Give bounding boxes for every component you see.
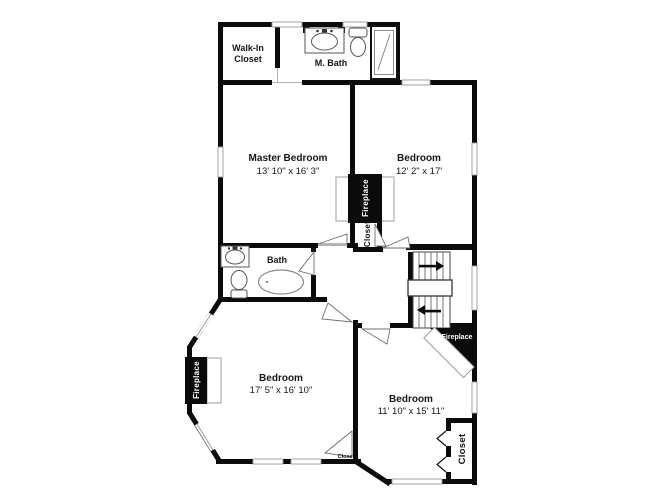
toilet-tank bbox=[349, 28, 367, 37]
fireplace-ne-label: Fireplace bbox=[361, 179, 370, 217]
master-bedroom-dims: 13' 10" x 16' 3" bbox=[257, 166, 320, 177]
tub-drain-icon bbox=[266, 281, 268, 283]
fireplace-se-label: Fireplace bbox=[442, 334, 473, 341]
bifold-door-icon bbox=[437, 431, 446, 446]
fireplace-ne: Fireplace bbox=[348, 174, 382, 223]
fireplace-sw-label: Fireplace bbox=[192, 361, 201, 399]
faucet-icon bbox=[240, 247, 242, 249]
bedroom-sw-label: Bedroom bbox=[259, 373, 303, 384]
faucet-icon bbox=[316, 30, 319, 33]
bath-fixtures bbox=[221, 246, 304, 298]
bedroom-ne-label: Bedroom bbox=[397, 153, 441, 164]
sink-basin bbox=[226, 250, 245, 264]
closet-ne: Closet bbox=[363, 221, 372, 247]
toilet-tank bbox=[231, 290, 247, 298]
bedroom-se-label: Bedroom bbox=[389, 394, 433, 405]
bedroom-se-dims: 11' 10" x 15' 11" bbox=[378, 406, 445, 417]
sink-basin bbox=[312, 33, 338, 50]
se-bedroom-door bbox=[362, 329, 390, 344]
master-bedroom-door bbox=[318, 234, 347, 244]
fireplace-sw: Fireplace bbox=[185, 357, 207, 404]
closet-ne-label: Closet bbox=[363, 221, 372, 247]
closet-sw-label: Closet bbox=[338, 454, 355, 460]
toilet-bowl bbox=[231, 271, 247, 290]
room-labels: Walk-In Closet M. Bath Master Bedroom 13… bbox=[232, 43, 444, 417]
bath-door bbox=[299, 252, 314, 275]
bedroom-sw-dims: 17' 5" x 16' 10" bbox=[250, 385, 313, 396]
master-bedroom-label: Master Bedroom bbox=[249, 153, 328, 164]
faucet-icon bbox=[228, 247, 230, 249]
faucet-icon bbox=[322, 29, 327, 33]
toilet-bowl bbox=[351, 38, 366, 57]
bedroom-ne-dims: 12' 2" x 17' bbox=[396, 166, 442, 177]
bathtub bbox=[259, 270, 304, 294]
floor-plan-page: Fireplace Closet Fireplace Fireplace Clo… bbox=[0, 0, 667, 500]
closet-se-label: Closet bbox=[457, 433, 468, 464]
sw-bedroom-door bbox=[322, 303, 352, 322]
closet-se: Closet bbox=[437, 431, 468, 472]
ne-bedroom-door bbox=[383, 237, 410, 248]
walk-in-closet-label-line2: Closet bbox=[234, 54, 262, 64]
floor-plan-drawing: Fireplace Closet Fireplace Fireplace Clo… bbox=[0, 0, 667, 500]
walk-in-closet-label-line1: Walk-In bbox=[232, 43, 264, 53]
bifold-door-icon bbox=[437, 457, 446, 472]
staircase bbox=[408, 252, 452, 328]
stair-landing bbox=[408, 280, 452, 296]
m-bath-label: M. Bath bbox=[315, 58, 348, 68]
master-bath-fixtures bbox=[303, 26, 397, 79]
faucet-icon bbox=[330, 30, 333, 33]
faucet-icon bbox=[233, 247, 238, 250]
fireplace-se: Fireplace bbox=[424, 327, 477, 377]
bath-label: Bath bbox=[267, 255, 287, 265]
